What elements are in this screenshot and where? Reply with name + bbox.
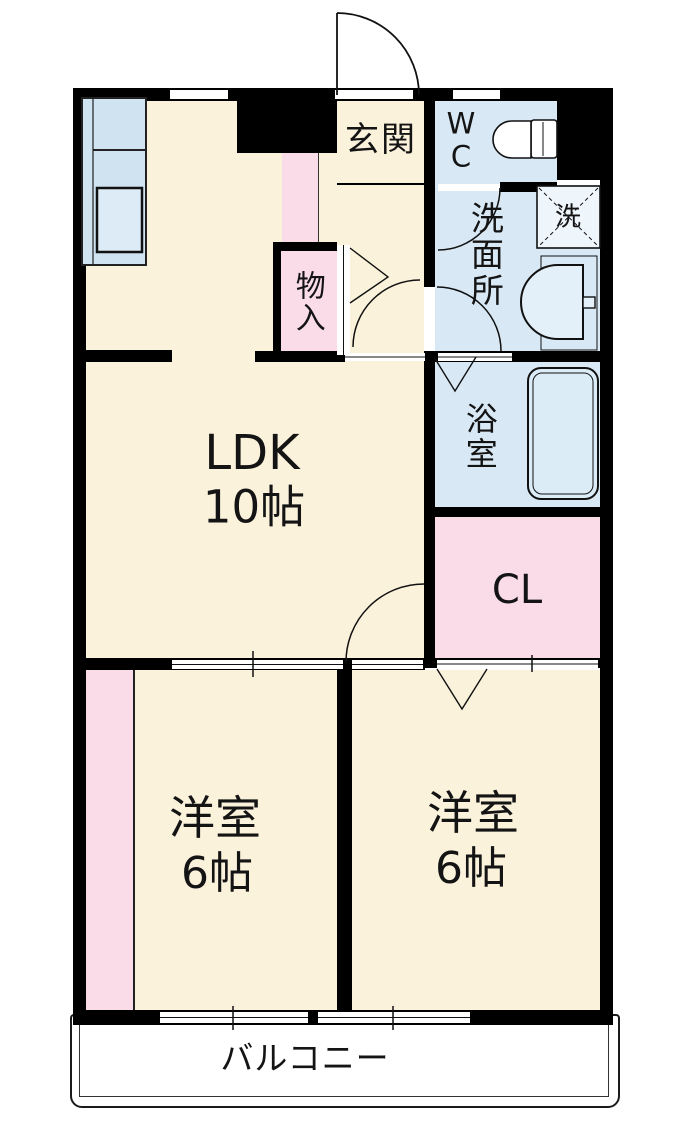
monoire-door-band: [337, 245, 350, 355]
wall-bedroom-divider: [337, 658, 352, 1010]
room-label-balcony: バルコニー: [220, 1042, 389, 1077]
senmen-yoku-opening: [438, 353, 512, 361]
wc-window: [453, 90, 500, 99]
room-label-bedroom-left: 洋室: [169, 794, 261, 842]
wall-right: [600, 88, 613, 1025]
entrance-door-icon: [337, 13, 419, 95]
wall-yoku-cl: [424, 507, 613, 517]
wall-monoire-bottom: [255, 351, 345, 362]
wall-below-cabinet: [273, 242, 337, 251]
room-label-bedroom-right: 洋室: [427, 789, 519, 837]
wc-door-opening: [438, 184, 500, 191]
room-label-yokushitsu: 浴室: [462, 402, 496, 472]
bedroom-right-window: [318, 1012, 470, 1023]
room-label-monoire: 物入: [291, 270, 323, 334]
bedroom-left-closet-strip: [85, 670, 135, 1010]
wall-monoire-left: [273, 242, 281, 362]
room-label-ldk: LDK: [204, 428, 299, 478]
ldk-bedroom-door-opening: [352, 660, 423, 669]
wall-left: [73, 88, 86, 1025]
floorplan-canvas: 玄関 WC 洗面所 洗 浴室 物入 CL LDK 10帖 洋室 6帖 洋室 6帖…: [0, 0, 700, 1121]
bedroom-left-window: [160, 1012, 308, 1023]
cl-folding-door-band: [437, 660, 598, 668]
room-label-senmenjo: 洗面所: [467, 201, 502, 309]
wall-wc-bottom: [500, 182, 557, 192]
room-yokushitsu-floor: [435, 362, 600, 507]
room-size-bedroom-left: 6帖: [181, 851, 253, 897]
room-label-cl: CL: [492, 569, 542, 611]
kitchen-window: [170, 90, 228, 99]
wall-wc-right-block: [557, 88, 613, 180]
wall-ldk-left-partial: [73, 350, 172, 362]
hall-ldk-opening: [345, 353, 425, 361]
hall-senmen-opening: [424, 287, 435, 351]
genkan-step-line: [337, 183, 425, 185]
entrance-opening: [335, 90, 413, 99]
ldk-sliding-door: [172, 660, 343, 669]
room-size-bedroom-right: 6帖: [435, 846, 507, 892]
genkan-cabinet-strip: [282, 153, 319, 242]
room-size-ldk: 10帖: [203, 483, 305, 530]
room-bedroom-right-floor: [352, 670, 600, 1010]
wall-entry-block: [237, 100, 337, 153]
wall-hall-wet-upper: [424, 100, 435, 287]
room-label-wc: WC: [444, 108, 478, 175]
room-label-genkan: 玄関: [345, 123, 417, 159]
washing-machine-label: 洗: [555, 204, 581, 231]
